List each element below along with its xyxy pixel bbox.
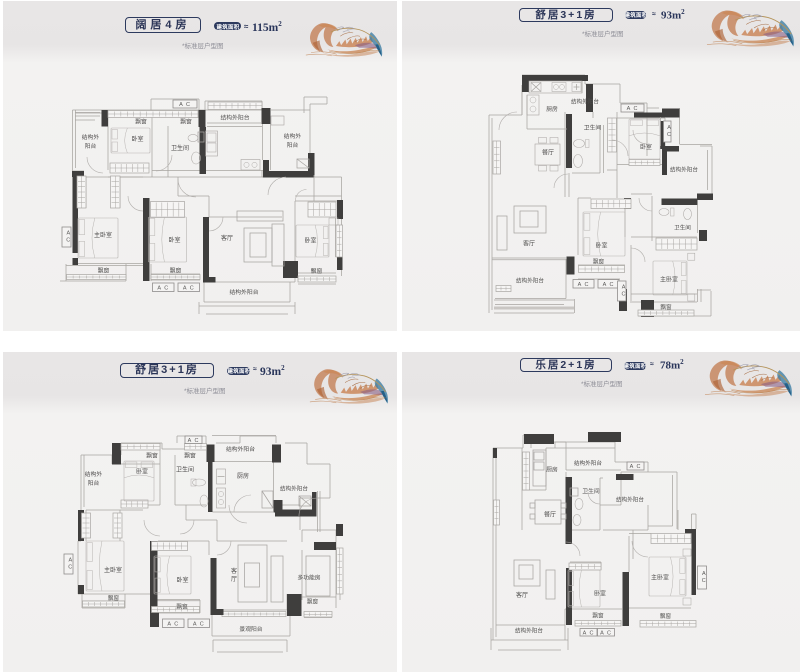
svg-text:结构外阳台: 结构外阳台 <box>280 485 308 493</box>
svg-text:结构外阳台: 结构外阳台 <box>515 627 543 635</box>
svg-text:飘窗: 飘窗 <box>135 118 147 126</box>
svg-text:卧室: 卧室 <box>136 468 148 476</box>
svg-text:卫生间: 卫生间 <box>582 487 600 495</box>
svg-text:阳台: 阳台 <box>287 141 299 149</box>
svg-text:飘窗: 飘窗 <box>180 118 192 126</box>
svg-text:结构外阳台: 结构外阳台 <box>230 288 259 296</box>
svg-text:主卧室: 主卧室 <box>104 566 122 574</box>
svg-text:飘窗: 飘窗 <box>660 303 672 311</box>
svg-text:卧室: 卧室 <box>131 135 143 143</box>
svg-text:飘窗: 飘窗 <box>108 594 120 602</box>
svg-text:飘窗: 飘窗 <box>307 598 319 606</box>
svg-text:A C: A C <box>179 102 191 108</box>
svg-text:景观阳台: 景观阳台 <box>239 625 262 633</box>
svg-text:飘窗: 飘窗 <box>311 267 323 275</box>
svg-text:结构外阳台: 结构外阳台 <box>226 445 255 453</box>
svg-text:厨房: 厨房 <box>546 466 558 474</box>
svg-text:飘窗: 飘窗 <box>146 452 158 460</box>
svg-text:A: A <box>622 285 626 291</box>
svg-text:阳台: 阳台 <box>85 142 97 150</box>
svg-text:飘窗: 飘窗 <box>170 267 182 275</box>
svg-text:飘窗: 飘窗 <box>184 452 196 460</box>
svg-text:餐厅: 餐厅 <box>544 511 556 519</box>
svg-text:C: C <box>667 132 671 138</box>
svg-text:卫生间: 卫生间 <box>176 466 194 474</box>
svg-text:飘窗: 飘窗 <box>98 267 110 275</box>
svg-text:结构外阳台: 结构外阳台 <box>221 114 250 122</box>
svg-text:飘窗: 飘窗 <box>593 258 605 266</box>
svg-text:飘窗: 飘窗 <box>660 612 672 620</box>
svg-text:结构外阳台: 结构外阳台 <box>516 277 544 285</box>
svg-text:A: A <box>66 231 70 237</box>
svg-text:主卧室: 主卧室 <box>660 276 678 284</box>
svg-text:卧室: 卧室 <box>595 242 607 250</box>
svg-text:C: C <box>66 238 70 244</box>
svg-text:C: C <box>622 292 626 298</box>
svg-text:A C: A C <box>167 621 179 627</box>
svg-text:A C: A C <box>630 464 642 470</box>
svg-text:主卧室: 主卧室 <box>94 231 112 239</box>
svg-text:客厅: 客厅 <box>516 591 528 599</box>
svg-text:结构外阳台: 结构外阳台 <box>616 496 644 504</box>
svg-text:A C: A C <box>157 285 169 291</box>
svg-text:结构外: 结构外 <box>85 470 103 478</box>
svg-text:A C: A C <box>603 282 615 288</box>
svg-text:结构外阳台: 结构外阳台 <box>670 166 698 174</box>
svg-text:结构外阳台: 结构外阳台 <box>571 98 599 106</box>
svg-text:C: C <box>68 565 72 571</box>
svg-text:卧室: 卧室 <box>594 590 606 598</box>
svg-text:A C: A C <box>578 282 590 288</box>
svg-text:卧室: 卧室 <box>304 237 316 245</box>
svg-text:结构外: 结构外 <box>284 132 302 140</box>
svg-text:厅: 厅 <box>231 576 237 583</box>
svg-text:C: C <box>702 578 706 584</box>
svg-text:A C: A C <box>188 438 200 444</box>
svg-text:飘窗: 飘窗 <box>176 603 188 611</box>
svg-text:A C: A C <box>583 630 595 636</box>
svg-text:厨房: 厨房 <box>237 472 249 480</box>
svg-text:客厅: 客厅 <box>221 234 233 242</box>
svg-text:主卧室: 主卧室 <box>651 574 669 582</box>
svg-text:A: A <box>667 125 671 131</box>
svg-text:A C: A C <box>627 106 639 112</box>
svg-text:A: A <box>702 571 706 577</box>
svg-text:卧室: 卧室 <box>176 576 188 584</box>
svg-text:A C: A C <box>600 630 612 636</box>
svg-text:A C: A C <box>183 285 195 291</box>
svg-text:厨房: 厨房 <box>546 105 558 113</box>
svg-text:结构外阳台: 结构外阳台 <box>574 459 602 467</box>
svg-text:客厅: 客厅 <box>523 240 535 248</box>
svg-text:结构外: 结构外 <box>82 133 100 141</box>
svg-text:餐厅: 餐厅 <box>542 149 554 157</box>
svg-text:A: A <box>68 558 72 564</box>
svg-text:飘窗: 飘窗 <box>592 612 604 620</box>
svg-text:卫生间: 卫生间 <box>171 144 189 152</box>
svg-text:阳台: 阳台 <box>88 479 100 487</box>
svg-text:卫生间: 卫生间 <box>674 224 691 232</box>
svg-text:卧室: 卧室 <box>640 143 652 151</box>
svg-text:卫生间: 卫生间 <box>584 124 602 132</box>
svg-text:客: 客 <box>231 567 237 575</box>
svg-text:多功能房: 多功能房 <box>297 574 320 582</box>
svg-text:A C: A C <box>193 621 205 627</box>
svg-text:卧室: 卧室 <box>168 236 180 244</box>
